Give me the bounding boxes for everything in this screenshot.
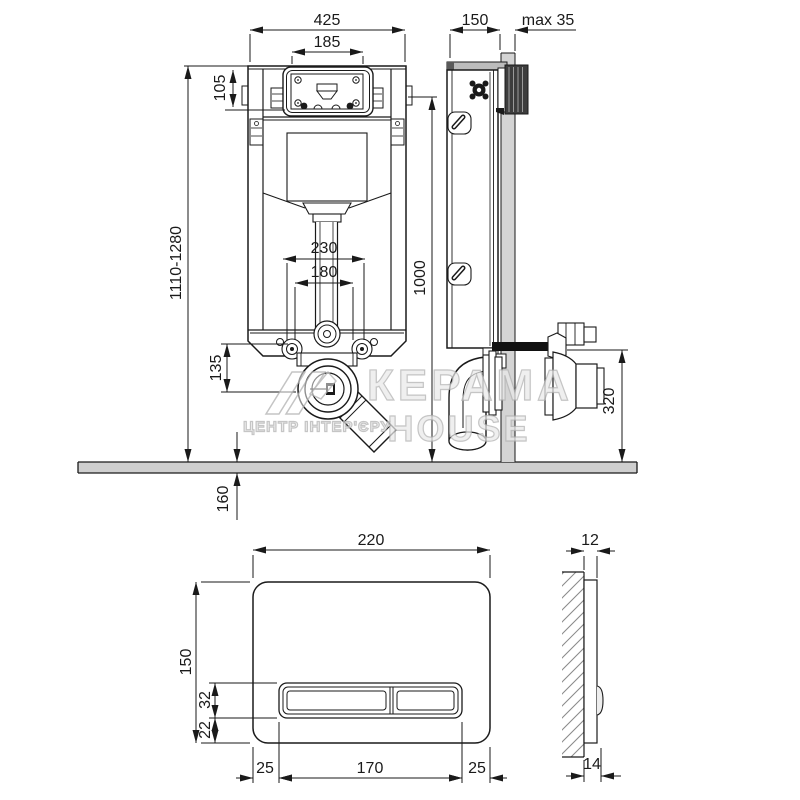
button-bump (597, 686, 603, 715)
floor-slab (78, 462, 637, 473)
front-view-drain-elbow (298, 359, 396, 452)
front-view-access-box (283, 67, 373, 116)
installation-frame-technical-drawing: 425 185 105 1110-1280 230 180 135 160 15… (0, 0, 800, 800)
drawing-linework (0, 0, 800, 800)
flush-plate-side (556, 544, 603, 784)
flush-pipe (492, 342, 552, 351)
flush-plate-front (253, 582, 490, 743)
